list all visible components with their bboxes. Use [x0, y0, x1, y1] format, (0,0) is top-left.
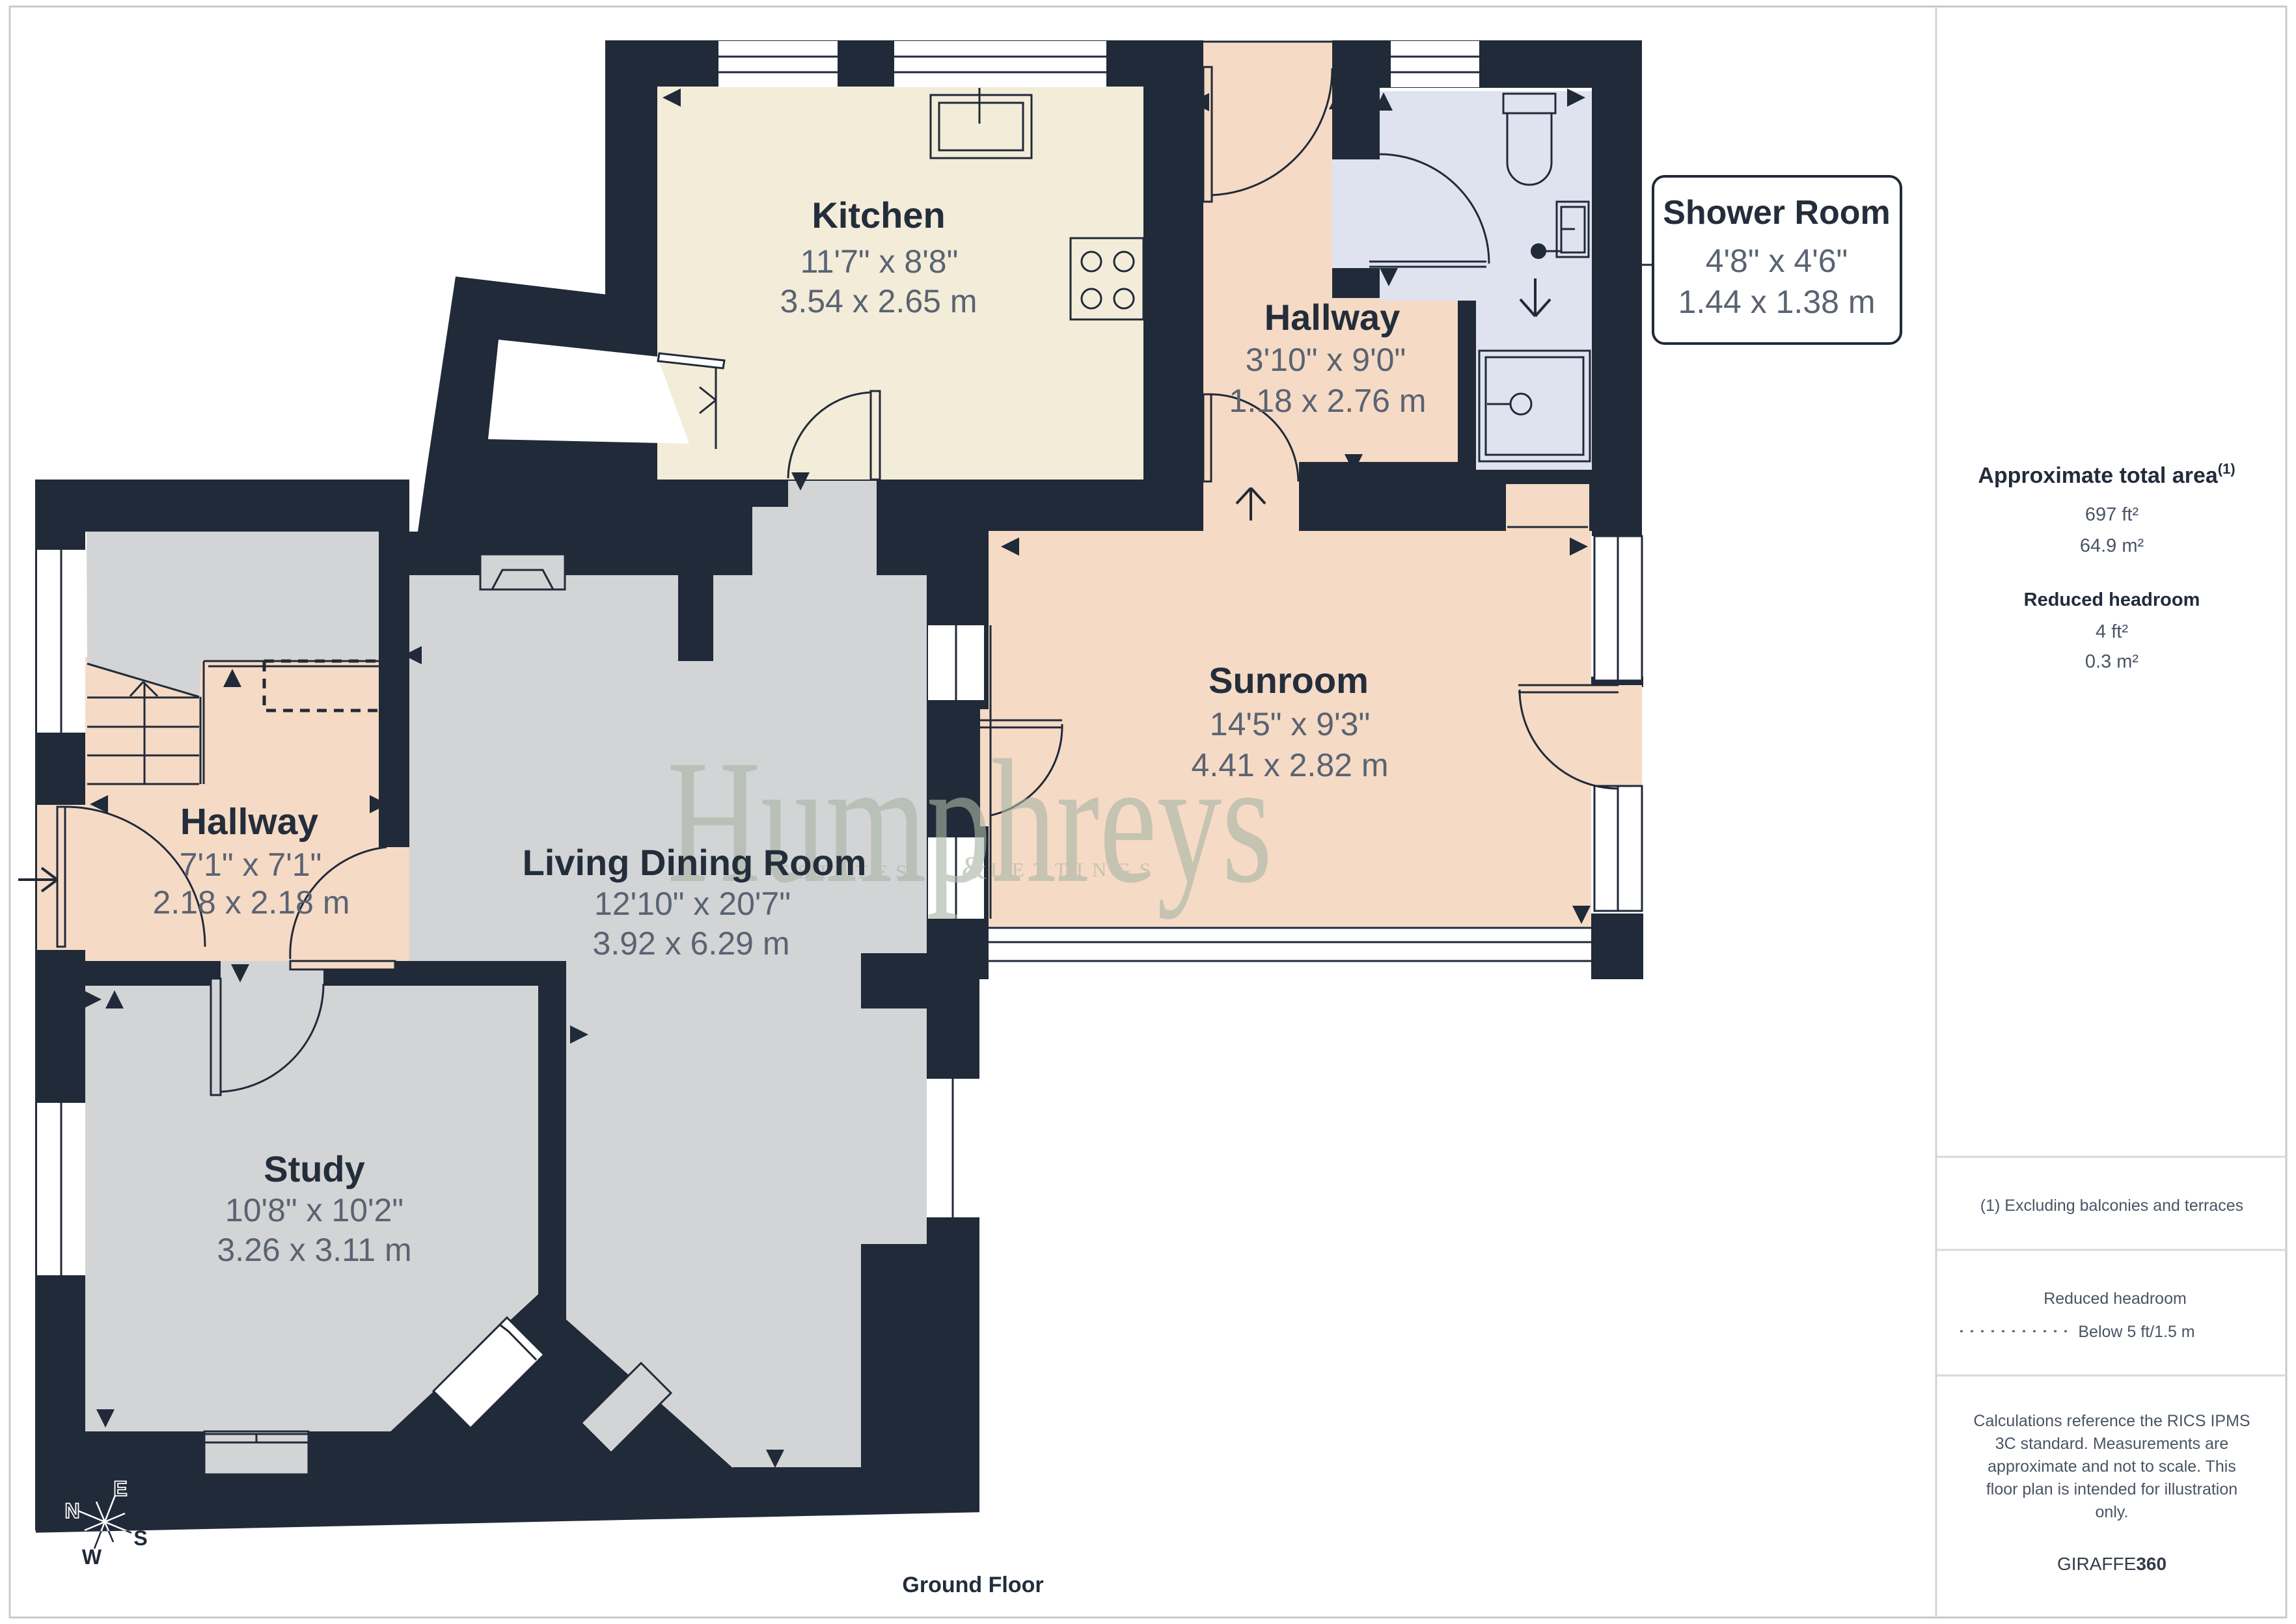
svg-text:1.44 x 1.38 m: 1.44 x 1.38 m: [1678, 284, 1876, 320]
svg-text:Reduced headroom: Reduced headroom: [2043, 1290, 2187, 1308]
svg-text:Sunroom: Sunroom: [1209, 660, 1369, 701]
svg-text:12'10" x 20'7": 12'10" x 20'7": [594, 886, 791, 922]
svg-text:2.18 x 2.18 m: 2.18 x 2.18 m: [153, 884, 350, 921]
svg-text:Living Dining Room: Living Dining Room: [523, 842, 867, 883]
svg-text:Ground Floor: Ground Floor: [902, 1573, 1043, 1597]
svg-text:7'1" x 7'1": 7'1" x 7'1": [180, 846, 322, 883]
svg-text:0.3 m²: 0.3 m²: [2085, 651, 2139, 672]
svg-text:Approximate total area(1): Approximate total area(1): [1978, 461, 2235, 488]
svg-text:697 ft²: 697 ft²: [2085, 504, 2139, 525]
svg-text:S: S: [133, 1526, 147, 1550]
svg-text:4.41 x 2.82 m: 4.41 x 2.82 m: [1192, 747, 1389, 783]
svg-text:3.92 x 6.29 m: 3.92 x 6.29 m: [593, 925, 790, 962]
svg-text:Study: Study: [264, 1148, 365, 1189]
svg-text:14'5" x 9'3": 14'5" x 9'3": [1210, 706, 1370, 742]
svg-text:3'10" x 9'0": 3'10" x 9'0": [1246, 342, 1406, 378]
svg-text:10'8" x 10'2": 10'8" x 10'2": [225, 1192, 403, 1228]
svg-text:4 ft²: 4 ft²: [2096, 621, 2128, 642]
svg-text:W: W: [82, 1545, 102, 1569]
svg-text:E: E: [113, 1477, 127, 1500]
svg-text:Shower Room: Shower Room: [1663, 194, 1891, 232]
svg-text:Kitchen: Kitchen: [812, 195, 945, 236]
svg-text:LETTINGS: LETTINGS: [991, 858, 1160, 881]
svg-text:N: N: [64, 1499, 79, 1522]
svg-text:only.: only.: [2096, 1503, 2129, 1521]
svg-text:11'7" x 8'8": 11'7" x 8'8": [800, 243, 959, 280]
svg-text:Hallway: Hallway: [180, 801, 319, 843]
svg-text:3.54 x 2.65 m: 3.54 x 2.65 m: [780, 283, 977, 319]
svg-text:Reduced headroom: Reduced headroom: [2024, 589, 2200, 610]
svg-text:&: &: [962, 849, 987, 886]
svg-text:Below 5 ft/1.5 m: Below 5 ft/1.5 m: [2078, 1323, 2194, 1341]
svg-text:3.26 x 3.11 m: 3.26 x 3.11 m: [217, 1232, 411, 1268]
svg-text:3C standard. Measurements are: 3C standard. Measurements are: [1995, 1435, 2229, 1453]
svg-text:approximate and not to scale.: approximate and not to scale. This: [1988, 1457, 2236, 1476]
svg-text:Calculations reference the RIC: Calculations reference the RICS IPMS: [1973, 1412, 2250, 1430]
svg-text:(1) Excluding balconies and te: (1) Excluding balconies and terraces: [1980, 1197, 2243, 1215]
svg-text:floor plan is intended for ill: floor plan is intended for illustration: [1986, 1480, 2237, 1498]
svg-text:64.9 m²: 64.9 m²: [2080, 535, 2144, 556]
svg-text:Hallway: Hallway: [1264, 297, 1401, 338]
svg-text:1.18 x 2.76 m: 1.18 x 2.76 m: [1229, 383, 1427, 419]
svg-text:4'8" x 4'6": 4'8" x 4'6": [1706, 243, 1848, 279]
svg-text:GIRAFFE360: GIRAFFE360: [2057, 1554, 2166, 1574]
